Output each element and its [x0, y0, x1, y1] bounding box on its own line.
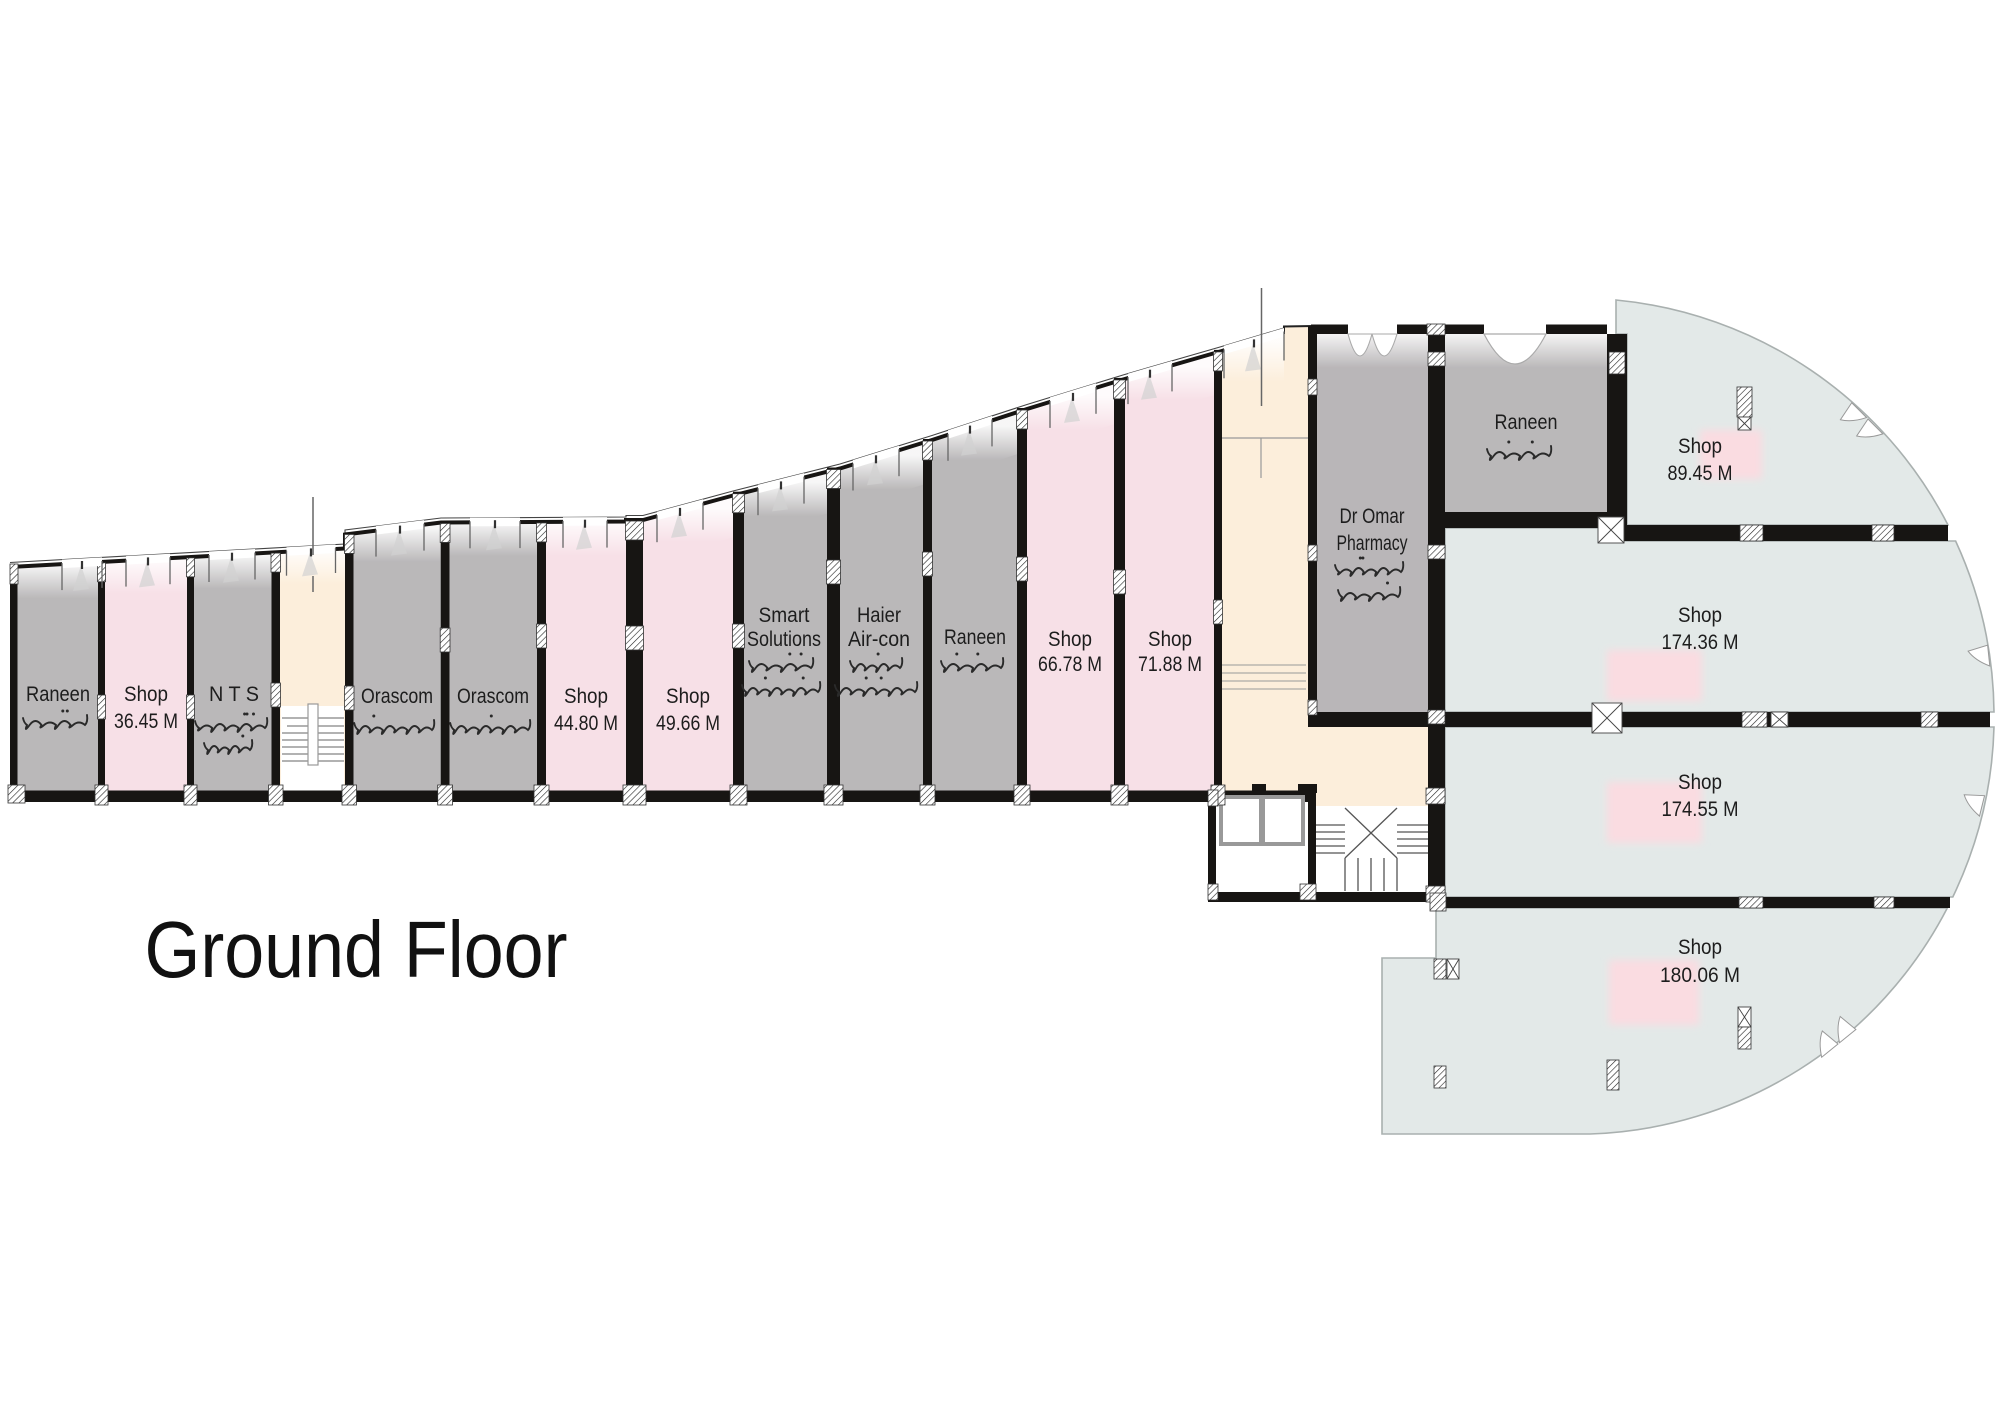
svg-text:Air-con: Air-con — [848, 628, 910, 651]
svg-text:Pharmacy: Pharmacy — [1337, 532, 1408, 555]
svg-text:Shop: Shop — [124, 683, 168, 706]
svg-text:Shop: Shop — [666, 685, 710, 708]
svg-text:Raneen: Raneen — [1495, 411, 1558, 434]
svg-text:180.06 M: 180.06 M — [1660, 964, 1740, 987]
svg-text:Raneen: Raneen — [944, 626, 1006, 649]
svg-text:Shop: Shop — [564, 685, 608, 708]
svg-text:Dr Omar: Dr Omar — [1340, 505, 1405, 528]
svg-text:Shop: Shop — [1678, 771, 1722, 794]
svg-text:71.88 M: 71.88 M — [1138, 653, 1202, 676]
svg-text:66.78 M: 66.78 M — [1038, 653, 1102, 676]
svg-text:49.66 M: 49.66 M — [656, 712, 720, 735]
svg-text:Shop: Shop — [1678, 435, 1722, 458]
svg-text:N T S: N T S — [209, 683, 259, 706]
svg-text:174.55 M: 174.55 M — [1662, 798, 1739, 821]
svg-text:Haier: Haier — [857, 604, 901, 627]
svg-text:Raneen: Raneen — [26, 683, 90, 706]
svg-text:174.36 M: 174.36 M — [1662, 631, 1739, 654]
svg-text:89.45 M: 89.45 M — [1668, 462, 1733, 485]
svg-text:Shop: Shop — [1048, 628, 1092, 651]
svg-text:Smart: Smart — [759, 604, 810, 627]
svg-text:Shop: Shop — [1678, 604, 1722, 627]
svg-text:Shop: Shop — [1148, 628, 1192, 651]
svg-text:36.45 M: 36.45 M — [114, 710, 178, 733]
svg-text:Orascom: Orascom — [361, 685, 433, 708]
svg-text:44.80 M: 44.80 M — [554, 712, 618, 735]
svg-text:Shop: Shop — [1678, 936, 1722, 959]
svg-text:Ground Floor: Ground Floor — [145, 905, 568, 994]
svg-text:Orascom: Orascom — [457, 685, 529, 708]
svg-text:Solutions: Solutions — [747, 628, 821, 651]
